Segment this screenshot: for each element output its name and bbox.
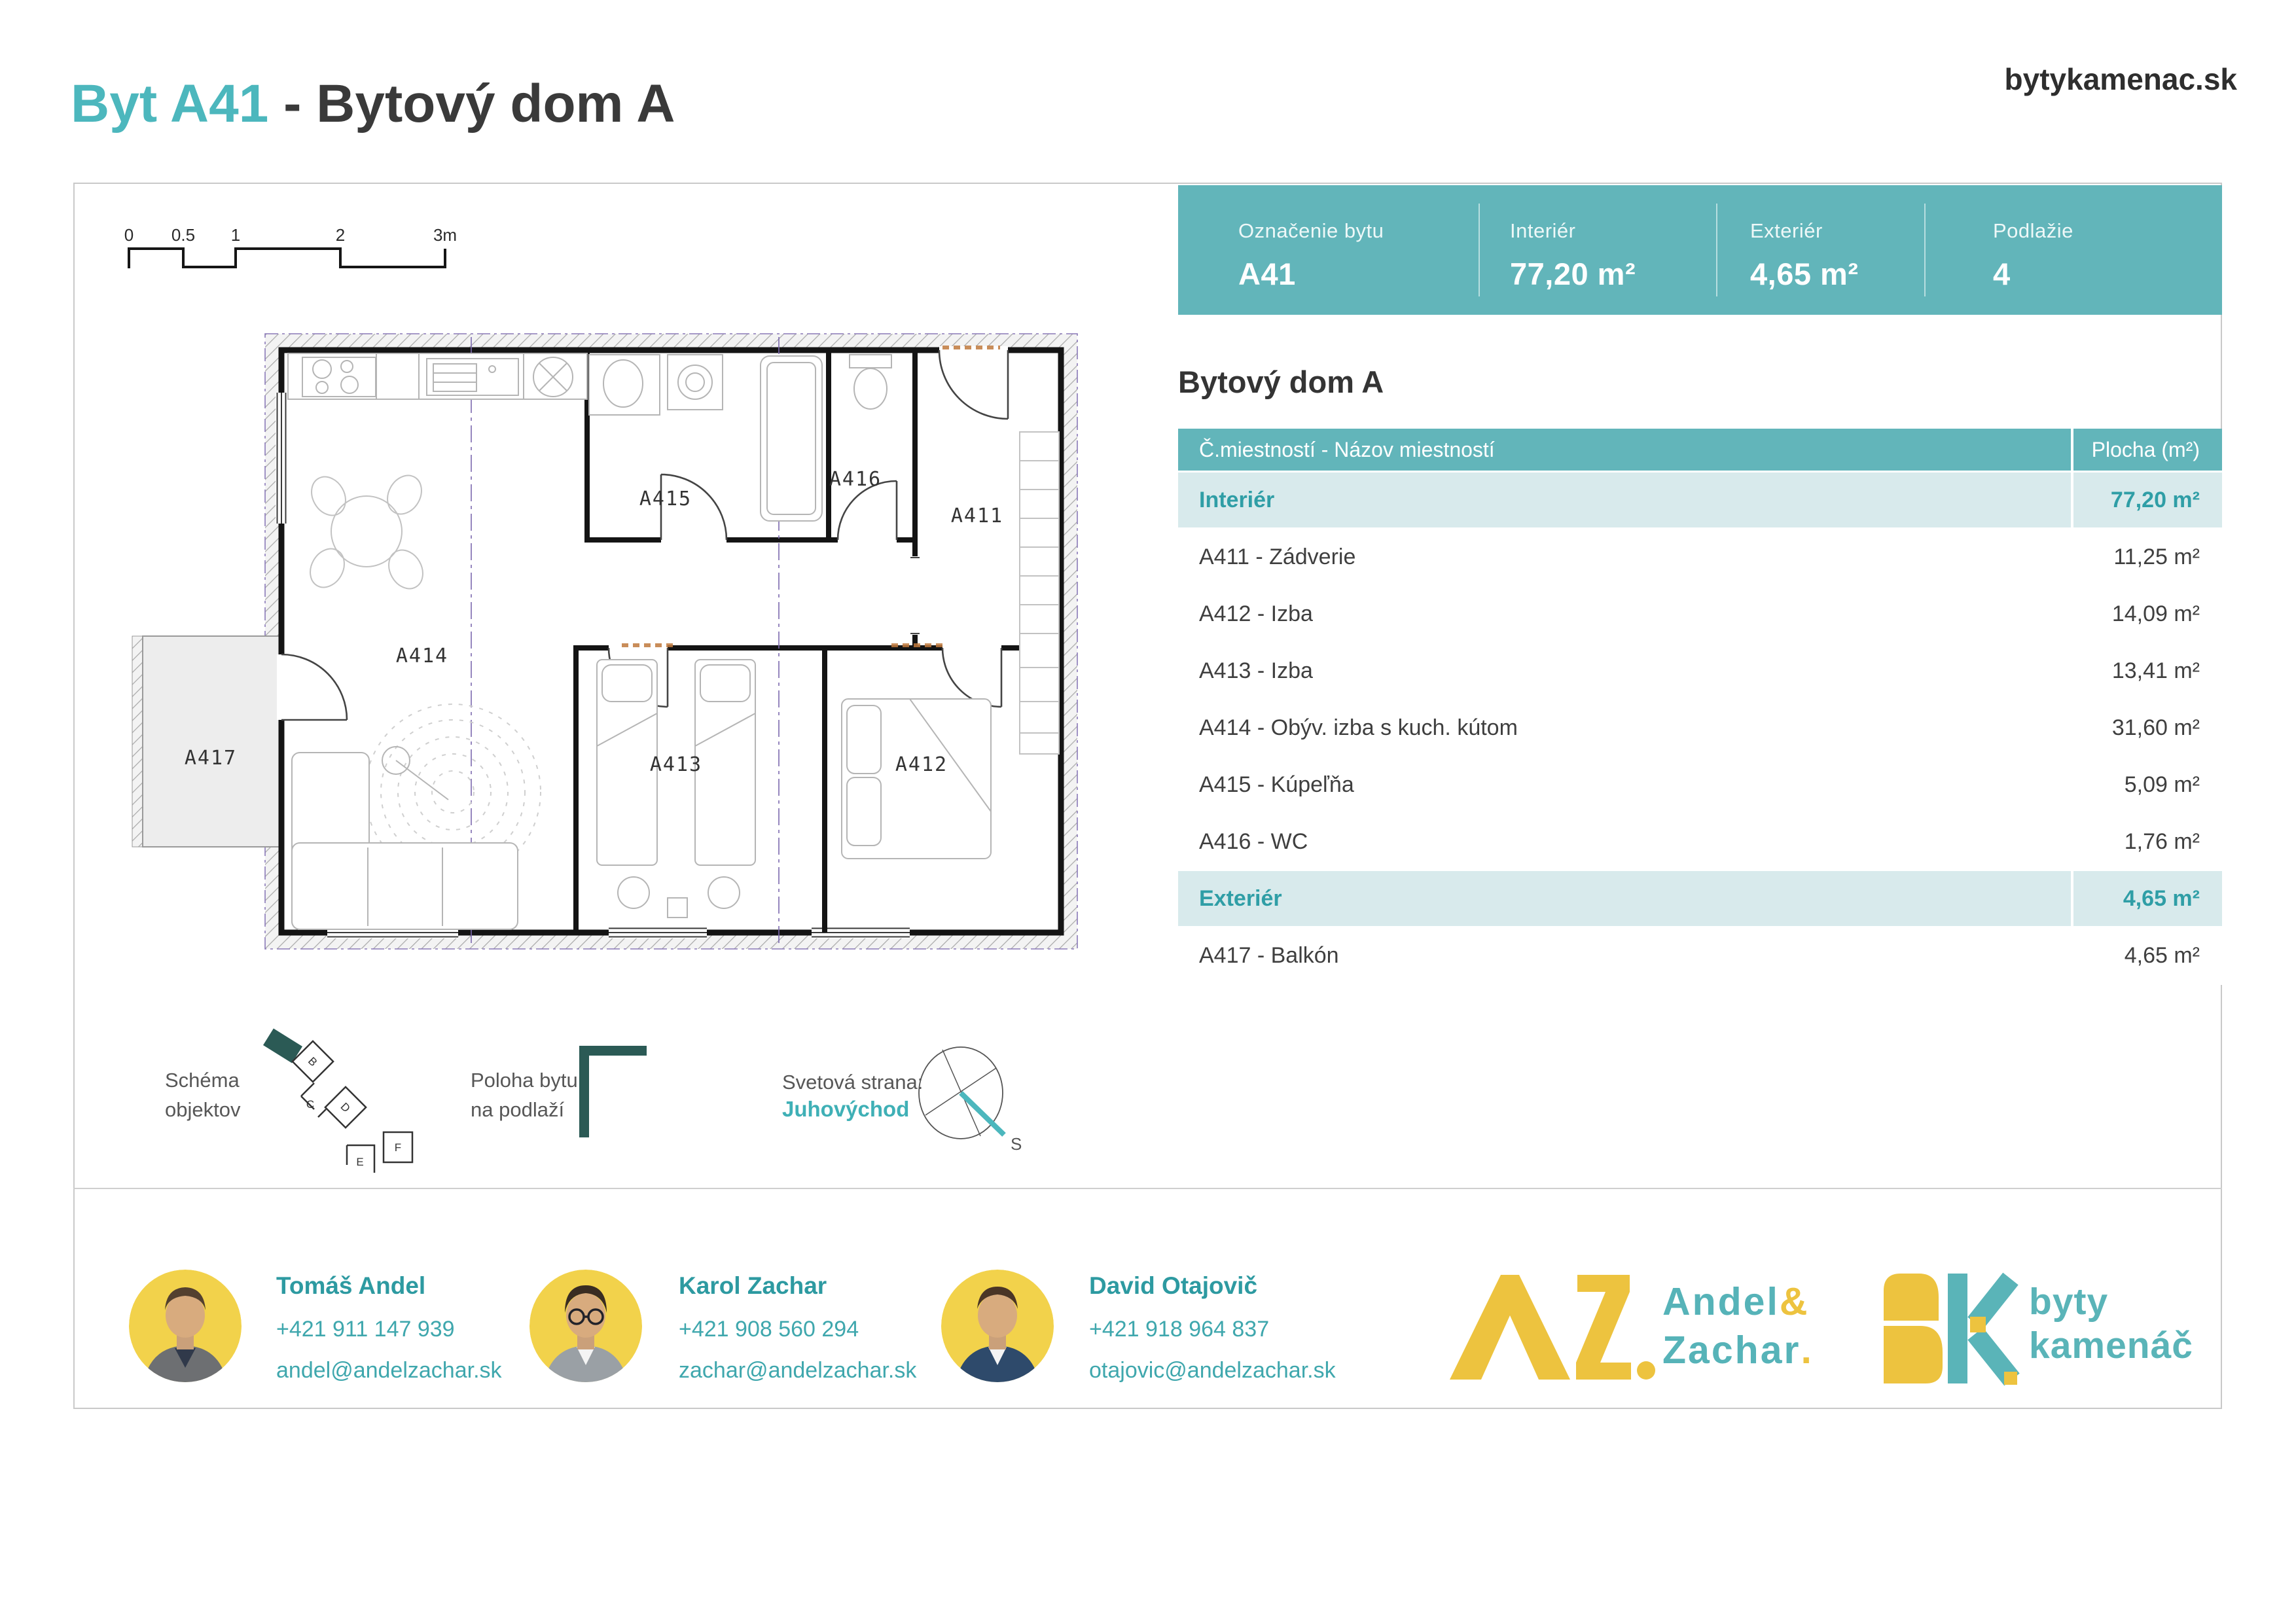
contact-phone[interactable]: +421 908 560 294: [679, 1317, 916, 1342]
room-label: A412 - Izba: [1178, 601, 1313, 627]
kitchen-unit: [288, 353, 587, 399]
room-label: A413 - Izba: [1178, 658, 1313, 684]
room-label: A417 - Balkón: [1178, 943, 1339, 969]
plan-room-label-a413: A413: [650, 753, 702, 776]
summary-value: A41: [1238, 256, 1479, 292]
summary-value: 4: [1993, 256, 2222, 292]
svetova-strana-label: Svetová strana:: [782, 1067, 923, 1097]
scale-tick-label: 0: [124, 225, 134, 245]
plan-room-label-a411: A411: [951, 505, 1003, 527]
byty-kamenac-logo-icon: [1880, 1268, 2024, 1393]
contact-email[interactable]: andel@andelzachar.sk: [276, 1358, 502, 1383]
compass-south-letter: S: [1011, 1134, 1022, 1154]
summary-col-interior: Interiér 77,20 m²: [1479, 185, 1716, 315]
room-area: 5,09 m²: [2071, 757, 2222, 812]
room-area: 4,65 m²: [2071, 871, 2222, 926]
col-header-rooms: Č.miestností - Názov miestností: [1178, 438, 1495, 462]
table-row: A411 - Zádverie 11,25 m²: [1178, 529, 2222, 586]
floor-plan: 0 0.5 1 2 3m: [65, 209, 1165, 995]
divider: [1479, 204, 1480, 296]
hall-wardrobe: [1020, 432, 1059, 754]
scheme-letter: B: [306, 1055, 319, 1069]
table-row: A412 - Izba 14,09 m²: [1178, 586, 2222, 643]
scale-tick-label: 2: [336, 225, 345, 245]
contact-email[interactable]: otajovic@andelzachar.sk: [1089, 1358, 1336, 1383]
summary-col-exterior: Exteriér 4,65 m²: [1716, 185, 1924, 315]
avatar-tomas-andel: [129, 1270, 242, 1382]
summary-value: 4,65 m²: [1750, 256, 1924, 292]
room-area: 31,60 m²: [2071, 700, 2222, 755]
contact-phone[interactable]: +421 918 964 837: [1089, 1317, 1336, 1342]
building-title: Bytový dom A: [1178, 364, 1384, 400]
scheme-letter: E: [356, 1156, 363, 1168]
summary-col-designation: Označenie bytu A41: [1178, 185, 1479, 315]
table-row: A415 - Kúpeľňa 5,09 m²: [1178, 757, 2222, 814]
table-row-exterier: Exteriér 4,65 m²: [1178, 871, 2222, 928]
contact-phone[interactable]: +421 911 147 939: [276, 1317, 502, 1342]
summary-label: Exteriér: [1750, 219, 1924, 243]
plan-room-label-a414: A414: [396, 645, 448, 668]
scheme-letter: D: [338, 1100, 353, 1115]
scale-tick-label: 0.5: [171, 225, 195, 245]
table-row: A417 - Balkón 4,65 m²: [1178, 928, 2222, 985]
page-title-apartment: Byt A41: [71, 74, 268, 134]
plan-room-label-a417: A417: [185, 747, 237, 770]
scale-bar-labels: 0 0.5 1 2 3m: [124, 225, 457, 245]
byty-kamenac-logo-text: byty kamenáč: [2029, 1280, 2193, 1368]
apartment-summary-bar: Označenie bytu A41 Interiér 77,20 m² Ext…: [1178, 185, 2222, 315]
avatar-david-otajovic: [941, 1270, 1054, 1382]
divider: [1924, 204, 1926, 296]
balcony: [143, 636, 281, 847]
poloha-bytu-label: Poloha bytu na podlaží: [471, 1065, 578, 1124]
scheme-letter: F: [395, 1141, 401, 1154]
orientation-value: Juhovýchod: [782, 1097, 909, 1122]
az-logo-text: Andel& Zachar.: [1662, 1277, 1814, 1374]
room-area: 77,20 m²: [2071, 473, 2222, 527]
table-row: A414 - Obýv. izba s kuch. kútom 31,60 m²: [1178, 700, 2222, 757]
summary-label: Označenie bytu: [1238, 219, 1479, 243]
az-logo-icon: [1443, 1270, 1659, 1384]
summary-col-floor: Podlažie 4: [1924, 185, 2222, 315]
room-table: Č.miestností - Názov miestností Plocha (…: [1178, 429, 2222, 985]
room-label: A415 - Kúpeľňa: [1178, 772, 1354, 798]
floor-position-icon: [579, 1046, 658, 1144]
room-label: Exteriér: [1178, 886, 1282, 912]
room-area: 11,25 m²: [2071, 529, 2222, 584]
contact-card: Tomáš Andel +421 911 147 939 andel@andel…: [276, 1272, 502, 1383]
room-area: 1,76 m²: [2071, 814, 2222, 869]
scale-tick-label: 3m: [433, 225, 457, 245]
room-label: Interiér: [1178, 488, 1274, 513]
summary-label: Podlažie: [1993, 219, 2222, 243]
contact-name: David Otajovič: [1089, 1272, 1336, 1300]
footer-divider: [73, 1188, 2222, 1189]
room-label: A411 - Zádverie: [1178, 544, 1355, 570]
building-scheme-diagram: B C D E F: [247, 1024, 444, 1181]
page-title: Byt A41 - Bytový dom A: [71, 73, 675, 135]
contact-card: Karol Zachar +421 908 560 294 zachar@and…: [679, 1272, 916, 1383]
compass-south-needle: [961, 1093, 1004, 1135]
room-area: 4,65 m²: [2071, 928, 2222, 983]
table-row-interier: Interiér 77,20 m²: [1178, 473, 2222, 529]
plan-room-label-a412: A412: [895, 753, 948, 776]
contact-name: Tomáš Andel: [276, 1272, 502, 1300]
page-title-building: - Bytový dom A: [268, 74, 675, 134]
bedroom-a412-furniture: [842, 699, 991, 859]
scheme-letter: C: [306, 1098, 314, 1111]
contact-name: Karol Zachar: [679, 1272, 916, 1300]
scale-bar: [129, 249, 445, 268]
avatar-karol-zachar: [529, 1270, 642, 1382]
contact-email[interactable]: zachar@andelzachar.sk: [679, 1358, 916, 1383]
table-row: A416 - WC 1,76 m²: [1178, 814, 2222, 871]
schema-objektov-label: Schéma objektov: [165, 1065, 240, 1124]
summary-value: 77,20 m²: [1510, 256, 1716, 292]
room-area: 13,41 m²: [2071, 643, 2222, 698]
plan-room-label-a416: A416: [829, 468, 882, 491]
scale-tick-label: 1: [231, 225, 240, 245]
divider: [1716, 204, 1717, 296]
room-label: A414 - Obýv. izba s kuch. kútom: [1178, 715, 1518, 741]
website-link[interactable]: bytykamenac.sk: [2005, 62, 2237, 97]
summary-label: Interiér: [1510, 219, 1716, 243]
room-label: A416 - WC: [1178, 829, 1308, 855]
balcony-railing: [132, 636, 143, 847]
room-area: 14,09 m²: [2071, 586, 2222, 641]
contact-card: David Otajovič +421 918 964 837 otajovic…: [1089, 1272, 1336, 1383]
table-row: A413 - Izba 13,41 m²: [1178, 643, 2222, 700]
plan-room-label-a415: A415: [639, 488, 692, 510]
compass-icon: S: [915, 1042, 1033, 1166]
col-header-area: Plocha (m²): [2071, 429, 2222, 471]
table-header-row: Č.miestností - Názov miestností Plocha (…: [1178, 429, 2222, 473]
